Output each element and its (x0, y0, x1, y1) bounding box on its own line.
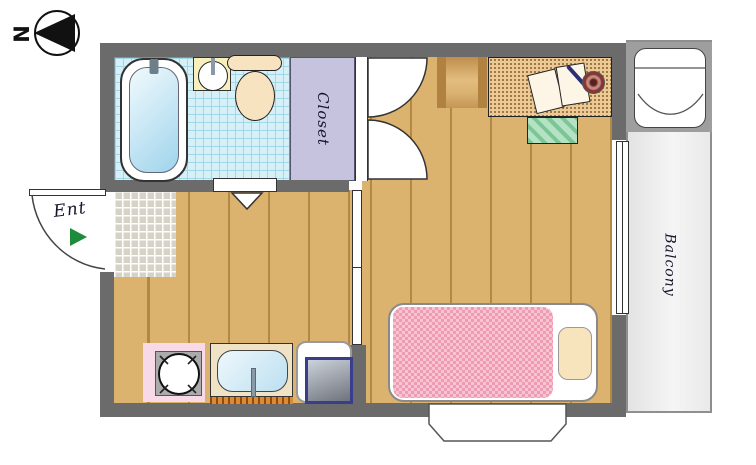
book (527, 62, 591, 114)
wall-top (100, 43, 626, 57)
stove-counter (143, 343, 205, 402)
wash-basin-faucet-icon (211, 58, 215, 75)
wall-bottom (100, 403, 626, 417)
genkan-entry-tile (114, 191, 176, 277)
wall-right-upper (612, 43, 626, 140)
bathroom-door (213, 178, 277, 192)
floor-cushion (527, 117, 578, 144)
compass: N (10, 11, 79, 55)
closet-label-text: Closet (313, 92, 331, 146)
compass-label: N (10, 25, 34, 43)
wall-left-upper (100, 43, 114, 192)
burner-ring (158, 353, 200, 395)
bathtub-water (129, 67, 179, 173)
kitchen-sink-faucet-icon (251, 368, 256, 397)
closet-door-frame (355, 57, 368, 181)
balcony-label-text: Balcony (662, 233, 678, 296)
blanket (393, 307, 553, 398)
entry-arrow-icon (70, 228, 87, 246)
cup (582, 71, 605, 94)
entrance-label-text: Ent (52, 198, 87, 222)
sink-drainboard (210, 397, 293, 404)
bathroom-wall-right (275, 180, 349, 192)
desk (488, 57, 612, 117)
bathtub (120, 58, 188, 182)
entrance-label: Ent (43, 195, 98, 225)
burner-icon (155, 351, 202, 396)
compass-circle (35, 11, 79, 55)
refrigerator (296, 341, 352, 403)
balcony-label: Balcony (628, 150, 712, 380)
closet-label: Closet (290, 57, 355, 181)
pillow (558, 327, 592, 380)
chair-arm-left (437, 57, 446, 108)
wall-left-lower (100, 272, 114, 417)
refrigerator-lid (305, 357, 353, 404)
wall-right-lower (612, 315, 626, 417)
washing-machine-pan (634, 48, 706, 128)
kitchen-sink-counter (210, 343, 293, 397)
toilet-bowl (235, 71, 275, 121)
compass-needle-icon (34, 14, 75, 52)
chair-arm-right (478, 57, 487, 108)
toilet-tank (227, 55, 282, 71)
chair (437, 57, 487, 108)
bathtub-faucet-icon (150, 59, 159, 74)
floor-plan-canvas: Ent Closet Balcony (0, 0, 756, 465)
room-divider-sliding-door (352, 190, 362, 345)
wash-basin (193, 57, 231, 91)
